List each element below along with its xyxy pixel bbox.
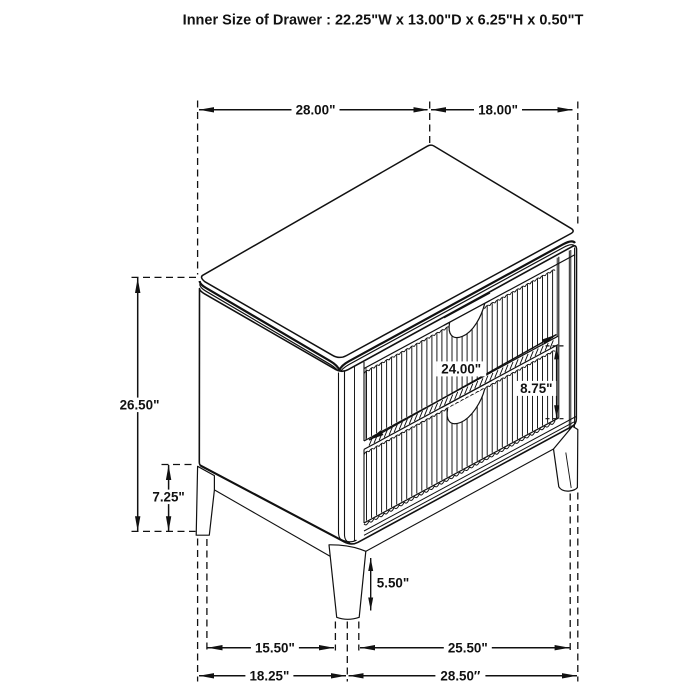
svg-text:28.00": 28.00": [296, 103, 336, 118]
svg-text:Inner Size of Drawer : 22.25"W: Inner Size of Drawer : 22.25"W x 13.00"D…: [183, 13, 584, 29]
svg-text:26.50": 26.50": [120, 398, 160, 413]
svg-text:5.50": 5.50": [377, 576, 409, 591]
svg-text:25.50": 25.50": [448, 640, 488, 655]
svg-text:18.00": 18.00": [478, 103, 518, 118]
svg-text:24.00": 24.00": [441, 362, 481, 377]
svg-text:8.75": 8.75": [520, 381, 552, 396]
svg-text:28.50″: 28.50″: [440, 669, 481, 684]
svg-text:15.50": 15.50": [255, 640, 295, 655]
svg-text:18.25": 18.25": [249, 669, 289, 684]
svg-text:7.25": 7.25": [152, 490, 184, 505]
